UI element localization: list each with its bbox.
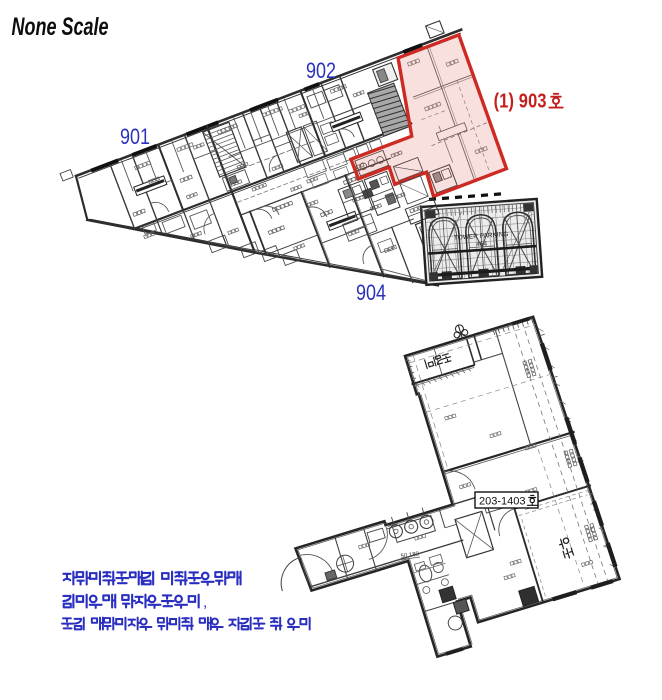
- svg-text:,: ,: [203, 594, 207, 611]
- svg-text:904: 904: [356, 281, 386, 305]
- svg-text:901: 901: [120, 125, 150, 149]
- svg-text:(1) 903: (1) 903: [494, 89, 547, 112]
- svg-text:203-1403: 203-1403: [479, 496, 526, 508]
- svg-text:902: 902: [306, 59, 336, 83]
- svg-text:None Scale: None Scale: [12, 12, 109, 41]
- svg-text:464: 464: [476, 240, 488, 248]
